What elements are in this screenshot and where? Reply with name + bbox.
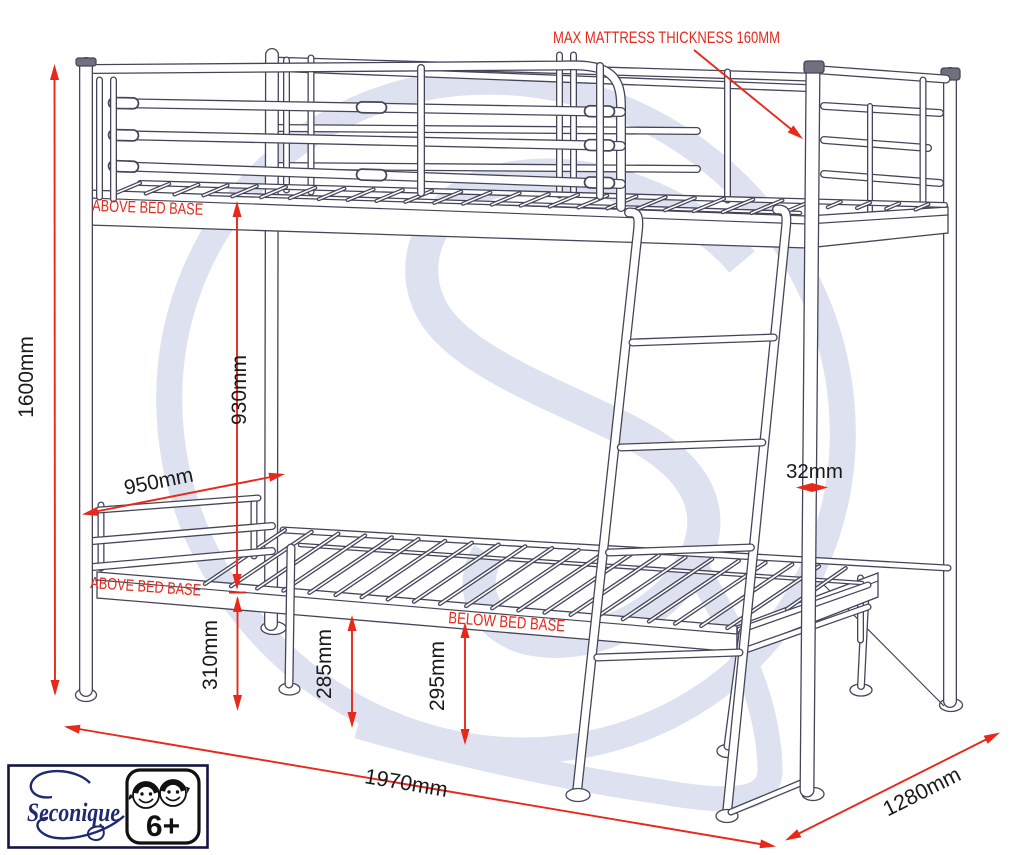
svg-text:6+: 6+ xyxy=(146,810,180,843)
svg-text:930mm: 930mm xyxy=(228,355,251,425)
svg-text:310mm: 310mm xyxy=(199,620,222,690)
svg-text:285mm: 285mm xyxy=(313,629,336,699)
svg-text:32mm: 32mm xyxy=(786,460,843,483)
svg-text:295mm: 295mm xyxy=(426,641,449,711)
svg-text:MAX MATTRESS THICKNESS 160MM: MAX MATTRESS THICKNESS 160MM xyxy=(553,29,780,47)
svg-text:Seconique: Seconique xyxy=(27,798,120,827)
svg-text:1600mm: 1600mm xyxy=(15,336,38,418)
